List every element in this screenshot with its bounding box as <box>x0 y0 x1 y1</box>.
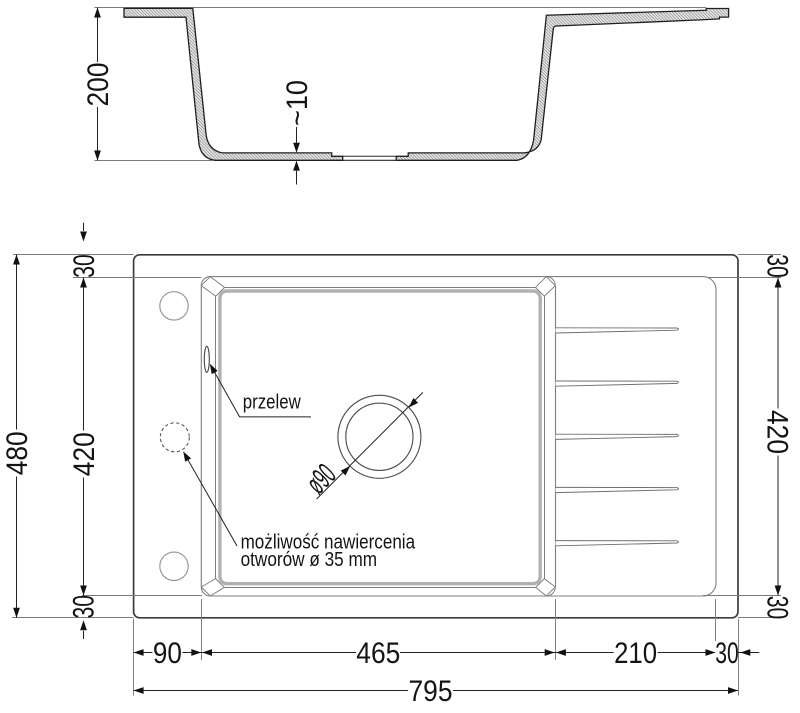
svg-text:465: 465 <box>356 637 400 670</box>
svg-text:30: 30 <box>761 254 794 278</box>
svg-text:210: 210 <box>614 637 657 670</box>
svg-text:przelew: przelew <box>243 391 301 413</box>
svg-text:30: 30 <box>68 254 101 278</box>
svg-text:otworów ø 35 mm: otworów ø 35 mm <box>241 549 378 571</box>
svg-text:480: 480 <box>1 431 34 475</box>
svg-text:30: 30 <box>761 596 794 620</box>
svg-text:200: 200 <box>82 63 115 107</box>
svg-text:420: 420 <box>68 432 101 476</box>
svg-text:90: 90 <box>153 637 182 670</box>
svg-text:420: 420 <box>761 410 794 454</box>
svg-text:30: 30 <box>715 637 739 670</box>
svg-text:30: 30 <box>68 595 101 619</box>
svg-text:~10: ~10 <box>281 80 314 126</box>
svg-text:795: 795 <box>409 675 453 708</box>
